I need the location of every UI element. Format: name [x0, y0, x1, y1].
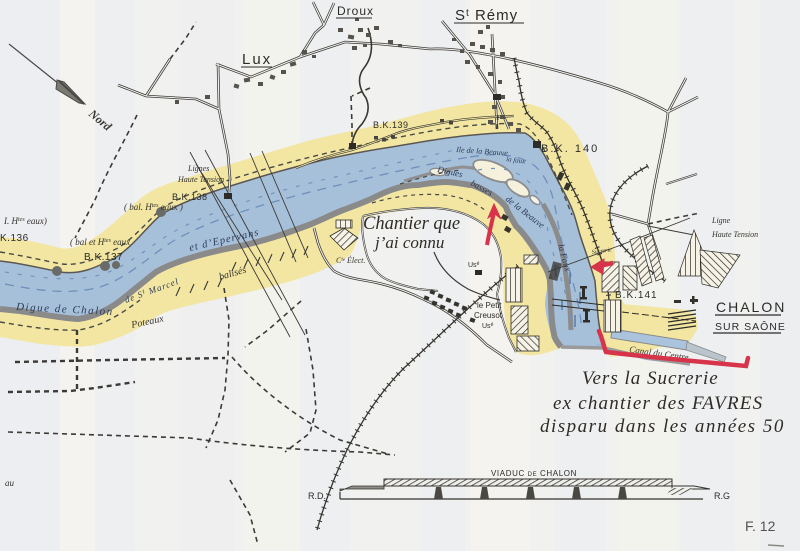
svg-text:CHALON: CHALON [716, 299, 786, 315]
svg-text:B.K.139: B.K.139 [373, 120, 409, 130]
svg-text:R.D.: R.D. [308, 491, 326, 501]
svg-text:Chantier que: Chantier que [363, 214, 460, 234]
svg-text:Cie Élect.: Cie Élect. [336, 255, 365, 265]
svg-text:I. Htes eaux): I. Htes eaux) [3, 216, 47, 226]
svg-text:B.K.138: B.K.138 [172, 192, 208, 202]
svg-text:Lignes: Lignes [187, 164, 209, 173]
svg-text:( bal et Htes eaux: ( bal et Htes eaux [70, 237, 130, 247]
svg-text:SUR SAÔNE: SUR SAÔNE [715, 320, 786, 333]
svg-text:le Petit: le Petit [477, 301, 502, 310]
svg-text:disparu dans les années 50: disparu dans les années 50 [540, 416, 785, 437]
svg-text:Haute Tension: Haute Tension [711, 230, 758, 239]
svg-text:Creusot: Creusot [474, 311, 503, 320]
svg-text:j’ai connu: j’ai connu [373, 233, 444, 252]
svg-text:St Rémy: St Rémy [455, 7, 518, 24]
svg-text:R.G: R.G [714, 491, 730, 501]
svg-text:F. 12: F. 12 [745, 518, 776, 534]
svg-text:ex chantier des FAVRES: ex chantier des FAVRES [553, 393, 763, 414]
svg-text:B.K. 140: B.K. 140 [541, 143, 599, 155]
svg-text:Ligne: Ligne [711, 216, 731, 225]
svg-text:Haute Tension: Haute Tension [177, 175, 224, 184]
svg-text:K.136: K.136 [0, 233, 29, 244]
svg-text:Lux: Lux [242, 51, 272, 68]
svg-text:Droux: Droux [337, 4, 374, 18]
svg-text:Vers la Sucrerie: Vers la Sucrerie [582, 368, 719, 389]
svg-text:au: au [5, 478, 15, 488]
svg-text:B.K.137: B.K.137 [84, 252, 123, 263]
svg-text:B.K.141: B.K.141 [615, 290, 658, 301]
